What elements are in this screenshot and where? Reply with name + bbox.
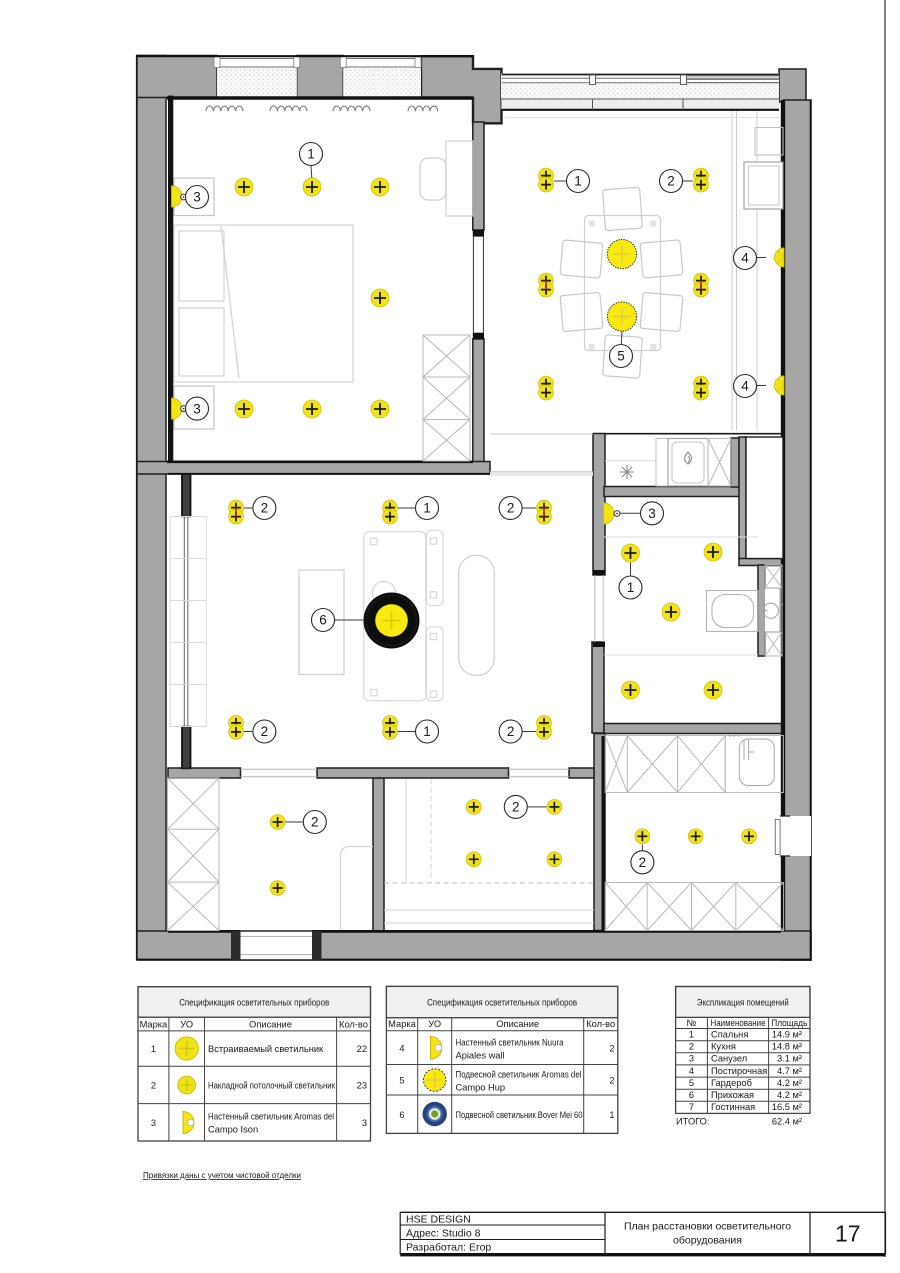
svg-text:4: 4: [741, 379, 749, 394]
svg-text:Встраиваемый светильник: Встраиваемый светильник: [208, 1044, 324, 1054]
svg-text:2: 2: [689, 1042, 694, 1052]
svg-text:Гостинная: Гостинная: [711, 1102, 755, 1112]
svg-text:Экспликация помещений: Экспликация помещений: [697, 998, 789, 1009]
svg-text:1: 1: [574, 174, 582, 189]
svg-text:2: 2: [639, 855, 647, 870]
svg-text:5: 5: [617, 349, 625, 364]
svg-text:3: 3: [362, 1118, 367, 1128]
svg-text:Описание: Описание: [496, 1019, 539, 1029]
svg-text:Спальня: Спальня: [711, 1030, 748, 1040]
svg-text:УО: УО: [428, 1019, 441, 1029]
svg-text:1: 1: [689, 1030, 694, 1040]
svg-text:Разработал: Егор: Разработал: Егор: [406, 1241, 491, 1253]
svg-text:5: 5: [689, 1078, 694, 1088]
svg-text:Марка: Марка: [388, 1019, 416, 1029]
svg-text:1: 1: [423, 724, 431, 739]
svg-text:6: 6: [319, 613, 327, 628]
svg-text:Campo Ison: Campo Ison: [208, 1125, 258, 1135]
svg-text:14.9 м²: 14.9 м²: [772, 1030, 802, 1040]
svg-text:Марка: Марка: [140, 1020, 168, 1030]
svg-text:№: №: [687, 1018, 697, 1028]
svg-text:2: 2: [609, 1044, 614, 1054]
svg-text:Спецификация осветительных при: Спецификация осветительных приборов: [179, 998, 329, 1009]
svg-text:3: 3: [648, 506, 656, 521]
svg-text:4.7 м²: 4.7 м²: [777, 1066, 802, 1076]
svg-text:Кухня: Кухня: [711, 1042, 736, 1052]
svg-text:2: 2: [507, 724, 515, 739]
svg-text:4: 4: [399, 1044, 404, 1054]
svg-text:Наименование: Наименование: [711, 1018, 766, 1028]
svg-text:Прихожая: Прихожая: [711, 1090, 754, 1100]
svg-text:7: 7: [689, 1102, 694, 1112]
svg-text:2: 2: [151, 1081, 156, 1091]
svg-text:Привязки даны с учетом чистово: Привязки даны с учетом чистовой отделки: [143, 1171, 301, 1180]
svg-text:2: 2: [609, 1076, 614, 1086]
svg-text:Campo Hup: Campo Hup: [456, 1083, 506, 1093]
svg-text:22: 22: [357, 1044, 367, 1054]
svg-text:3: 3: [689, 1054, 694, 1064]
svg-text:Настенный светильник Aromas de: Настенный светильник Aromas del: [208, 1112, 334, 1122]
svg-text:Постирочная: Постирочная: [711, 1066, 767, 1076]
svg-text:3: 3: [193, 190, 201, 205]
svg-text:1: 1: [307, 147, 315, 162]
svg-text:Накладной потолочный светильни: Накладной потолочный светильник: [208, 1081, 336, 1091]
svg-text:14.8 м²: 14.8 м²: [772, 1042, 802, 1052]
svg-text:1: 1: [151, 1044, 156, 1054]
svg-text:4: 4: [741, 251, 749, 266]
svg-text:62.4 м²: 62.4 м²: [772, 1117, 802, 1127]
svg-text:5: 5: [399, 1076, 404, 1086]
svg-text:16.5 м²: 16.5 м²: [772, 1102, 802, 1112]
svg-text:1: 1: [423, 501, 431, 516]
svg-text:3.1 м²: 3.1 м²: [777, 1054, 802, 1064]
svg-text:23: 23: [357, 1081, 367, 1091]
svg-text:УО: УО: [180, 1020, 193, 1030]
svg-text:1: 1: [627, 580, 635, 595]
svg-text:Кол-во: Кол-во: [586, 1019, 615, 1029]
svg-text:17: 17: [835, 1221, 861, 1247]
svg-text:2: 2: [512, 800, 520, 815]
svg-text:HSE DESIGN: HSE DESIGN: [406, 1213, 471, 1225]
svg-text:2: 2: [261, 501, 269, 516]
svg-text:3: 3: [151, 1118, 156, 1128]
svg-text:Подвесной светильник Bover Mei: Подвесной светильник Bover Mei 60: [456, 1110, 583, 1120]
svg-text:1: 1: [609, 1110, 614, 1120]
svg-text:Санузел: Санузел: [711, 1054, 747, 1064]
svg-text:2: 2: [311, 815, 319, 830]
svg-text:Настенный светильник Nuura: Настенный светильник Nuura: [456, 1038, 565, 1048]
svg-text:Площадь: Площадь: [771, 1018, 807, 1028]
svg-text:Описание: Описание: [249, 1020, 292, 1030]
svg-text:ИТОГО:: ИТОГО:: [676, 1117, 710, 1127]
svg-text:Apiales wall: Apiales wall: [456, 1051, 505, 1061]
svg-text:6: 6: [689, 1090, 694, 1100]
svg-text:4: 4: [689, 1066, 694, 1076]
svg-text:Подвесной светильник Aromas de: Подвесной светильник Aromas del: [456, 1070, 582, 1080]
svg-text:2: 2: [261, 724, 269, 739]
svg-text:4.2 м²: 4.2 м²: [777, 1090, 802, 1100]
svg-text:План расстановки осветительног: План расстановки осветительного: [624, 1221, 791, 1233]
svg-text:оборудования: оборудования: [673, 1235, 742, 1247]
svg-text:3: 3: [193, 401, 201, 416]
svg-text:Спецификация осветительных при: Спецификация осветительных приборов: [427, 998, 577, 1009]
svg-text:Гардероб: Гардероб: [711, 1078, 752, 1088]
svg-text:Кол-во: Кол-во: [339, 1020, 368, 1030]
svg-text:2: 2: [667, 174, 675, 189]
svg-text:6: 6: [399, 1110, 404, 1120]
svg-text:Адрес: Studio 8: Адрес: Studio 8: [406, 1227, 481, 1239]
svg-text:2: 2: [507, 501, 515, 516]
svg-text:4.2 м²: 4.2 м²: [777, 1078, 802, 1088]
